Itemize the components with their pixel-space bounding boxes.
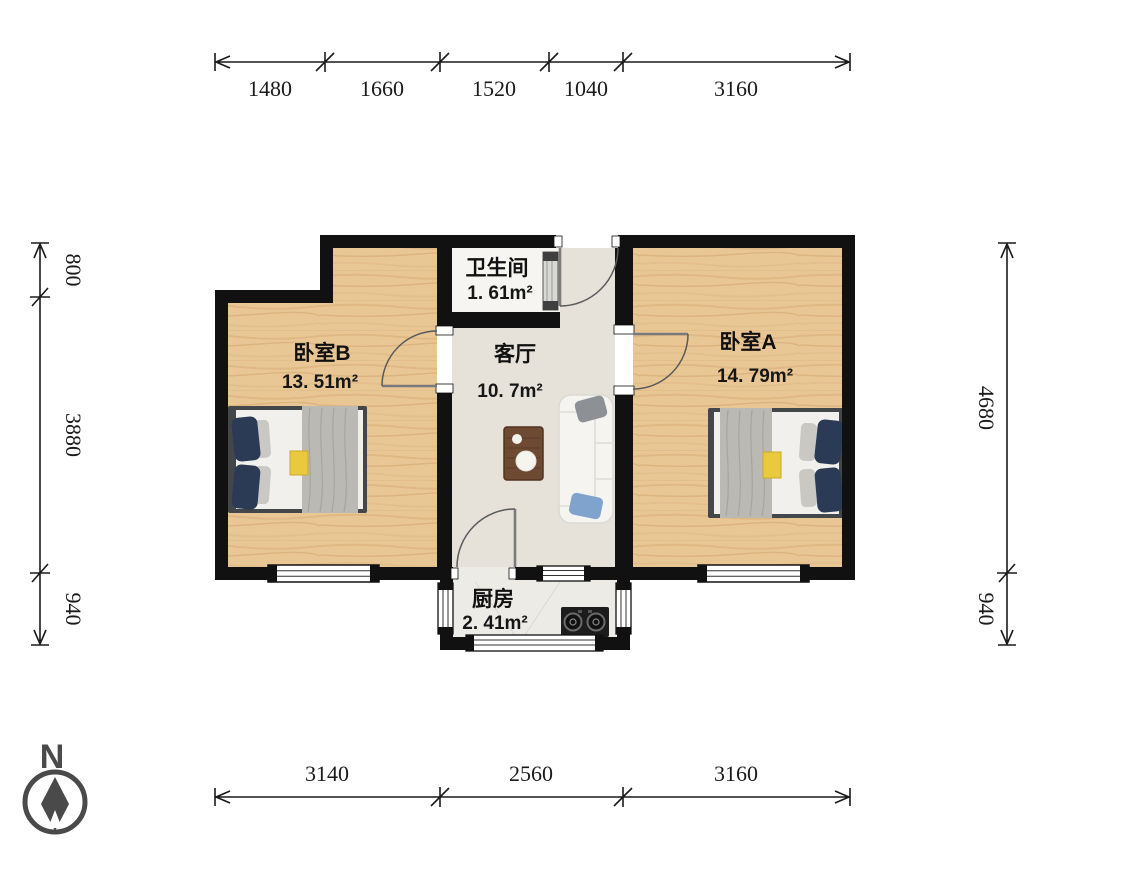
bed-b-icon bbox=[228, 406, 367, 513]
bathroom-area: 1. 61m² bbox=[467, 283, 532, 304]
wall-living-kitchen-a bbox=[515, 567, 537, 580]
dim-top-3: 1520 bbox=[472, 76, 516, 101]
bedroom-a-window bbox=[698, 565, 809, 582]
kitchen-area: 2. 41m² bbox=[462, 613, 527, 634]
door-jamb bbox=[612, 236, 620, 247]
dim-top-5: 3160 bbox=[714, 76, 758, 101]
wall-bathroom-bottom bbox=[452, 312, 560, 328]
bathroom-door-panel bbox=[543, 252, 558, 310]
wall-left bbox=[215, 290, 228, 580]
living-room-area: 10. 7m² bbox=[477, 381, 542, 402]
dim-bottom-1: 3140 bbox=[305, 761, 349, 786]
wall-notch-horizontal bbox=[215, 290, 333, 303]
kitchen-label: 厨房 bbox=[472, 587, 514, 611]
grey-pillow bbox=[799, 468, 818, 507]
kitchen-bottom-window bbox=[466, 635, 603, 651]
kitchen-passthrough-window bbox=[537, 566, 590, 581]
wall-top-left bbox=[320, 235, 556, 248]
door-jamb bbox=[436, 326, 453, 335]
dim-top-2: 1660 bbox=[360, 76, 404, 101]
wall-top-right bbox=[618, 235, 855, 248]
navy-pillow bbox=[814, 419, 844, 465]
door-jamb bbox=[509, 568, 516, 579]
door-jamb bbox=[436, 384, 453, 393]
dim-bottom-2: 2560 bbox=[509, 761, 553, 786]
coffee-table-icon bbox=[504, 427, 543, 480]
dim-left-2: 3880 bbox=[61, 413, 86, 457]
sofa-icon bbox=[559, 394, 613, 523]
kitchen-right-window bbox=[616, 583, 631, 634]
door-jamb bbox=[451, 568, 458, 579]
wall-right bbox=[842, 235, 855, 580]
wall-bedroom-b-lower bbox=[437, 385, 452, 567]
navy-pillow bbox=[231, 416, 261, 462]
wall-notch-vertical bbox=[320, 235, 333, 303]
stove-icon bbox=[561, 607, 609, 637]
bedroom-a-area: 14. 79m² bbox=[717, 366, 793, 387]
stove-knob bbox=[588, 610, 592, 613]
bed-book-icon bbox=[290, 451, 308, 475]
bathroom-label: 卫生间 bbox=[466, 256, 529, 280]
dim-left-3: 940 bbox=[61, 593, 86, 626]
burner bbox=[565, 614, 582, 631]
bedroom-a-floor bbox=[633, 248, 842, 567]
kitchen-left-window bbox=[438, 583, 453, 634]
floor-plan-page: 卧室B 13. 51m² 卫生间 1. 61m² 客厅 10. 7m² 卧室A … bbox=[0, 0, 1135, 888]
door-jamb bbox=[614, 386, 634, 395]
burner bbox=[588, 614, 605, 631]
navy-pillow bbox=[231, 464, 261, 510]
dim-bottom-3: 3160 bbox=[714, 761, 758, 786]
wall-bedroom-a-lower bbox=[615, 388, 633, 567]
table-small-plate bbox=[512, 434, 522, 444]
bedroom-b-label: 卧室B bbox=[293, 341, 350, 365]
navy-pillow bbox=[814, 467, 844, 513]
dim-left-1: 800 bbox=[61, 254, 86, 287]
wall-living-kitchen-b bbox=[590, 567, 623, 580]
door-jamb bbox=[554, 236, 562, 247]
table-large-plate bbox=[516, 451, 536, 471]
wall-bedroom-a-upper bbox=[615, 248, 633, 332]
door-jamb bbox=[614, 325, 634, 334]
bedroom-b-window bbox=[268, 565, 379, 582]
dim-right-2: 940 bbox=[974, 593, 999, 626]
living-room-label: 客厅 bbox=[494, 342, 536, 366]
bedroom-a-label: 卧室A bbox=[719, 330, 776, 354]
stove-knob bbox=[578, 610, 582, 613]
wall-bedroom-b-upper bbox=[437, 248, 452, 333]
dim-top-4: 1040 bbox=[564, 76, 608, 101]
dim-top-1: 1480 bbox=[248, 76, 292, 101]
bed-book-icon bbox=[763, 452, 781, 478]
bed-a-icon bbox=[708, 408, 845, 518]
bedroom-b-area: 13. 51m² bbox=[282, 372, 358, 393]
floor-plan: 卧室B 13. 51m² 卫生间 1. 61m² 客厅 10. 7m² 卧室A … bbox=[0, 0, 1135, 888]
dim-right-1: 4680 bbox=[974, 386, 999, 430]
